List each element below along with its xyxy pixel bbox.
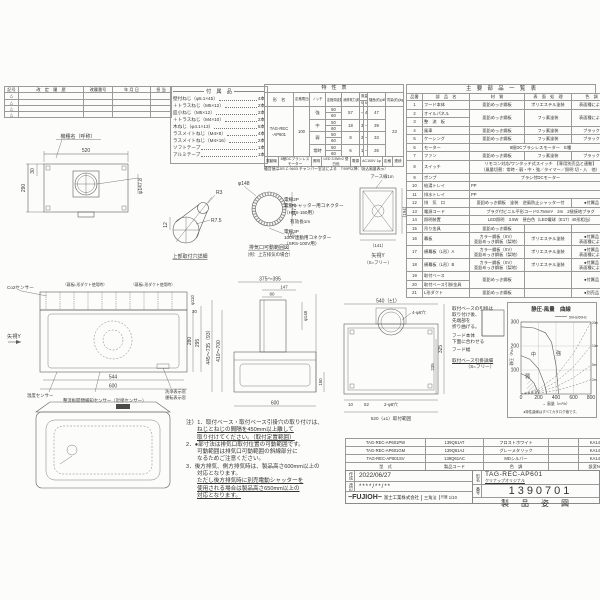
front-dim-110: φ110 bbox=[190, 295, 195, 305]
svg-text:400: 400 bbox=[552, 395, 561, 401]
accessory-item: ＋トラスねじ（M4×10）2本 bbox=[173, 116, 265, 123]
note-line: 使用される場合は製品高さ650mm以上の bbox=[186, 486, 364, 493]
view-arrow-y: 矢視Y bbox=[7, 332, 21, 344]
spec-notch: 弱 bbox=[310, 132, 326, 145]
svg-text:R7.5: R7.5 bbox=[211, 218, 222, 224]
svg-text:445～735（93）: 445～735（93） bbox=[206, 327, 212, 364]
parts-row: 5ケーシング亜鉛めっき鋼板フッ素塗装ブラック bbox=[407, 135, 600, 144]
parts-row: 8スイッチリモコン対応/ワンタッチ式スイッチ 【専用別売品と連動】（風量切替：常… bbox=[407, 160, 600, 173]
parts-row: 2オイルパネル亜鉛めっき鋼板フッ素塗装表面種による bbox=[407, 109, 600, 118]
keyhole-dim-r3: R3 bbox=[208, 190, 223, 203]
rear-bottom-dims: 10 52 2-φ8穴 bbox=[344, 400, 438, 408]
front-grille bbox=[40, 292, 187, 310]
parts-h-name: 部 品 名 bbox=[423, 94, 470, 101]
spec-h-power: 消費電力(約)(W) bbox=[342, 93, 360, 107]
graph-x-ticks: 0 200 400 600 800 bbox=[520, 395, 596, 401]
svg-text:375～395: 375～395 bbox=[259, 277, 281, 283]
svg-text:0: 0 bbox=[520, 395, 523, 401]
spec-weight: 23 bbox=[386, 107, 404, 157]
spec-h-noise: 騒音(約)(dB) bbox=[368, 93, 386, 107]
svg-text:5m: 5m bbox=[592, 363, 597, 367]
svg-text:12: 12 bbox=[163, 222, 169, 228]
bottom-panel-outline bbox=[36, 412, 170, 488]
installation-notes: 注）1．取付ベース・取付ベース引掛穴の取り付けは、 ねじとねじの間隔を450mm… bbox=[186, 420, 364, 500]
svg-text:325: 325 bbox=[438, 345, 444, 354]
spec-notch: 強 bbox=[310, 107, 326, 120]
side-dim-147: 147 bbox=[262, 285, 296, 291]
spec-model: TAG-REC-AP601 bbox=[265, 107, 294, 157]
svg-text:4-φ6穴: 4-φ6穴 bbox=[412, 309, 426, 316]
model-number: TAG-REC-AP601 bbox=[485, 471, 599, 478]
svg-text:600: 600 bbox=[569, 395, 578, 401]
spec-footer-cell: 照明 bbox=[312, 157, 322, 166]
svg-text:600: 600 bbox=[109, 384, 118, 390]
parts-table: 品番 部 品 名 材 質 表 面 処 理 色 調 1フード本体亜鉛めっき鋼板ポリ… bbox=[406, 93, 600, 298]
svg-text:φ148: φ148 bbox=[303, 310, 308, 321]
range-dim-148: φ148 bbox=[238, 181, 256, 196]
base-note-line: フード幅 bbox=[452, 347, 508, 353]
note-line: 取り付けてください。（取付定置範囲） bbox=[186, 435, 364, 442]
range-label-2: （例：上方排気の場合） bbox=[245, 251, 293, 258]
spec-footer-cell: AC100V 1φ bbox=[361, 157, 383, 166]
fujioh-logo: −FUJIOH− bbox=[346, 494, 384, 501]
accessories-title: 付 属 品 bbox=[206, 88, 232, 95]
parts-row: 1フード本体亜鉛めっき鋼板ポリエステル塗装表面種による bbox=[407, 101, 600, 110]
spec-h-air60: 60Hz bbox=[364, 101, 368, 107]
accessories-panel: 付 属 品 壁付ねじ（φ5.1×45）4本 ＋トラスねじ（M5×12）2本 皿小… bbox=[170, 86, 268, 164]
spec-power: 18 bbox=[342, 119, 360, 132]
spec-footer-cell: 8極DCブラシレスモーター bbox=[279, 157, 312, 166]
model-row: TAG-REC-AP601SV139Q61AC MDシルバー KA140 bbox=[346, 455, 600, 463]
duct-range-hatch bbox=[376, 308, 406, 324]
parts-row: 15吊り金具亜鉛めっき鋼板 bbox=[407, 224, 600, 233]
scale-label: 尺度 bbox=[439, 495, 449, 500]
rear-holes-8: 2-φ8穴 bbox=[384, 401, 398, 408]
scale-value: 1/10 bbox=[449, 495, 457, 500]
svg-text:20m: 20m bbox=[592, 321, 599, 325]
side-dim-375-395: 375～395 bbox=[238, 277, 302, 283]
svg-text:235: 235 bbox=[430, 363, 435, 371]
svg-text:540（±1）: 540（±1） bbox=[376, 299, 400, 305]
svg-text:矢視Y: 矢視Y bbox=[7, 332, 21, 340]
spec-notch: 常時 bbox=[310, 144, 326, 157]
plan-dim-30: 30 bbox=[30, 164, 37, 176]
accessory-item: ソフトテープ1本 bbox=[173, 144, 265, 151]
spec-table-block: 特 性 表 形 名 定格電圧(V) ノッチ 定格周波数(Hz) 消費電力(約)(… bbox=[264, 84, 404, 173]
spec-power: 6 bbox=[342, 144, 360, 157]
performance-graph: 静圧-風量 曲線 50Hz/60Hz 強 中 弱 2m 5m 10m 20m bbox=[507, 302, 597, 418]
svg-text:290: 290 bbox=[21, 184, 27, 193]
spec-power: 8 bbox=[342, 132, 360, 145]
mini-dim-194: （194） bbox=[402, 188, 407, 234]
spec-footer-cell: 電動機 bbox=[265, 157, 279, 166]
spec-noise: 47 bbox=[368, 107, 386, 120]
svg-text:600: 600 bbox=[271, 401, 280, 407]
spec-footer: 電動機 8極DCブラシレスモーター 照明 LED 3.5W×2 昼白色 電源 A… bbox=[264, 157, 404, 167]
spec-noise: 33 bbox=[368, 132, 386, 145]
accessory-item: アルミテープ1本 bbox=[173, 151, 265, 158]
parts-h-no: 品番 bbox=[407, 94, 423, 101]
graph-note: ●特性曲線はすべてカタログ値です。 bbox=[523, 409, 579, 414]
connector-line: （SRS-100V用） bbox=[284, 241, 354, 247]
accessory-item: ラスメイトねじ（M4×8）4本 bbox=[173, 130, 265, 137]
note-line: ただし後方排気時に別売電動シャッターを bbox=[186, 478, 364, 485]
connector-line: 電動シャッター用コネクター bbox=[284, 203, 354, 209]
mini-view-label: 矢視Y bbox=[371, 252, 385, 259]
svg-text:2m: 2m bbox=[592, 378, 597, 382]
svg-text:280: 280 bbox=[187, 337, 193, 346]
keyhole-label: 上部取付穴詳細 bbox=[172, 253, 207, 260]
side-dim-600: 600 bbox=[234, 401, 316, 407]
spec-freq: 60 bbox=[326, 150, 342, 156]
co2-sensor-label: Co2センサー bbox=[7, 285, 34, 291]
rear-dim-540: 540（±1） bbox=[344, 299, 438, 305]
spec-notch: 中 bbox=[310, 119, 326, 132]
parts-title: 主 要 部 品 一 覧 表 bbox=[406, 84, 596, 93]
spec-h-freq: 定格周波数(Hz) bbox=[326, 93, 342, 107]
parts-row: 13電源コードプラグ付ビニル平形コード0.75mm² 2m 2極接地プラグ bbox=[407, 207, 600, 216]
svg-text:150: 150 bbox=[318, 378, 323, 386]
plan-dim-duct-dia: φ147.8 bbox=[97, 174, 144, 194]
parts-table-block: 主 要 部 品 一 覧 表 品番 部 品 名 材 質 表 面 処 理 色 調 1… bbox=[406, 84, 596, 298]
spec-footer-cell: 定格 bbox=[383, 157, 393, 166]
parts-h-material: 材 質 bbox=[470, 94, 525, 101]
svg-text:（194）: （194） bbox=[402, 204, 407, 220]
title-block: 作成 2022/06/27 改訂 ****/**/** −FUJIOH− 富士工… bbox=[345, 470, 600, 504]
plan-duct-opening bbox=[73, 171, 99, 197]
revision-symbol: △ bbox=[5, 112, 19, 118]
svg-text:φ110: φ110 bbox=[190, 295, 195, 305]
accessory-item: ＋トラスねじ（M5×12）2本 bbox=[173, 102, 265, 109]
plan-dim-520: 520 bbox=[44, 148, 128, 162]
note-line: ねじとねじの間隔を450mm以上離して bbox=[186, 427, 364, 434]
side-panel-note-right: （幕板L形ダクト使用時） bbox=[131, 282, 175, 287]
rear-dim-10: 10 bbox=[348, 402, 353, 407]
graph-legend: 50Hz/60Hz bbox=[555, 316, 587, 320]
parts-row: 14照明装置LED照明 3.5W 昼白色（LED電球（E17）40形相当） bbox=[407, 216, 600, 225]
range-label-1: 排気口可動範囲図 bbox=[249, 244, 289, 251]
parts-h-surface: 表 面 処 理 bbox=[525, 94, 572, 101]
svg-text:520（±1）取付範囲: 520（±1）取付範囲 bbox=[371, 415, 412, 422]
parts-row: 17横幕板（L形）Aカラー鋼板（SV）亜鉛めっき鋼板（梨地）ポリエステル塗装●付… bbox=[407, 246, 600, 259]
parts-row: 19取付ベース亜鉛めっき鋼板●付属品 bbox=[407, 272, 600, 281]
base-detail-scale: （S=フリー） bbox=[452, 364, 508, 370]
side-dim-410-700: 410～700 bbox=[216, 310, 222, 392]
side-dim-148: φ148 bbox=[302, 302, 308, 330]
model-variants-table: TAG-REC-AP601PW139Q61AT フロストホワイト KA140 T… bbox=[345, 438, 600, 471]
side-view: 375～395 147 80 φ148 445～735（93） 410～700 bbox=[204, 274, 332, 424]
note-line: なるためご注意ください。 bbox=[186, 456, 364, 463]
accessory-item: ラスメイトねじ（M4×16）2本 bbox=[173, 137, 265, 144]
parts-row: 11排水トレイPP bbox=[407, 190, 600, 199]
mini-view-scale: （S=フリー） bbox=[364, 260, 391, 265]
spec-h-notch: ノッチ bbox=[310, 93, 326, 107]
keyhole-dim-12: 12 bbox=[163, 217, 170, 230]
drawing-no-label: 番号 bbox=[473, 485, 482, 497]
spec-voltage: 100 bbox=[294, 107, 310, 157]
model-row: TAG-REC-AP601GM139Q61AJ グレーメタリック KA140 bbox=[346, 447, 600, 455]
model-subtitle: クリナップオリジナル bbox=[485, 478, 599, 484]
connector-line: 有効長1m bbox=[284, 216, 354, 228]
plan-shutter bbox=[78, 212, 94, 217]
front-dim-280: 280 bbox=[187, 310, 193, 372]
note-line: 対応となります。 bbox=[186, 493, 364, 500]
connector-callouts: 電線2P 電動シャッター用コネクター （HDS-150用） 有効長1m 電線3P… bbox=[284, 197, 354, 248]
spec-footer-cell: 連続 bbox=[393, 157, 403, 166]
spec-h-voltage: 定格電圧(V) bbox=[294, 93, 310, 107]
revision-table: 記号 改 定 履 歴 改履番号 年 月 日 担 当 △ △ △ △ bbox=[4, 86, 172, 118]
parts-row: 10給湯トレイPP bbox=[407, 182, 600, 191]
rear-holes-6: 4-φ6穴 bbox=[402, 309, 426, 320]
accessory-item: 皿小ねじ（M5×12）2本 bbox=[173, 109, 265, 116]
spec-title: 特 性 表 bbox=[264, 84, 404, 92]
svg-text:800: 800 bbox=[587, 395, 596, 401]
nameplate-label: 機種名（呼称） bbox=[60, 133, 95, 140]
front-dim-295: 295 bbox=[195, 306, 201, 372]
product-drawing-sheet: 記号 改 定 履 歴 改履番号 年 月 日 担 当 △ △ △ △ 機種名（呼称… bbox=[0, 0, 600, 600]
front-view: Co2センサー （幕板L形ダクト使用時） （幕板L形ダクト使用時） 544 60… bbox=[5, 280, 209, 402]
spec-h-weight: 質量(約)(kg) bbox=[386, 93, 404, 107]
spec-h-airflow: 風量(m³/h) bbox=[360, 93, 368, 101]
front-body bbox=[40, 310, 187, 372]
revision-date: ****/**/** bbox=[355, 482, 472, 492]
svg-text:200: 200 bbox=[534, 395, 543, 401]
earth-wire-label: アース線1m bbox=[370, 173, 394, 180]
spec-table: 形 名 定格電圧(V) ノッチ 定格周波数(Hz) 消費電力(約)(W) 風量(… bbox=[264, 92, 404, 157]
accessory-item: 壁付ねじ（φ5.1×45）4本 bbox=[173, 95, 265, 102]
svg-text:295: 295 bbox=[195, 339, 201, 348]
parts-h-color: 色 調 bbox=[572, 94, 600, 101]
side-dim-80: 80 bbox=[262, 292, 282, 298]
bottom-display-window bbox=[116, 404, 130, 409]
graph-y-label: → 静圧（Pa） bbox=[509, 346, 514, 371]
svg-text:544: 544 bbox=[109, 375, 118, 381]
projection-method: 三角法 bbox=[421, 495, 439, 501]
bottom-view bbox=[20, 398, 188, 498]
rear-dim-52: 52 bbox=[364, 402, 369, 407]
base-hook-detail bbox=[480, 308, 506, 338]
creation-date: 2022/06/27 bbox=[355, 471, 472, 481]
drawing-number: 1390701 bbox=[482, 485, 599, 497]
side-dim-445-735: 445～735（93） bbox=[206, 300, 212, 392]
side-panel-note-left: （幕板L形ダクト使用時） bbox=[63, 282, 107, 287]
spec-h-air50: 50Hz bbox=[360, 101, 364, 107]
svg-text:強: 強 bbox=[556, 350, 561, 357]
svg-text:520: 520 bbox=[82, 148, 91, 154]
rear-duct-circle bbox=[378, 309, 404, 335]
parts-row: 18横幕板（L形）Bカラー鋼板（SV）亜鉛めっき鋼板（梨地）ポリエステル塗装●付… bbox=[407, 259, 600, 272]
note-line: 3．後方排気、側方排気時は、製品高さ600mm以上の bbox=[186, 464, 364, 471]
spec-h-model: 形 名 bbox=[265, 93, 294, 107]
model-row: TAG-REC-AP601PW139Q61AT フロストホワイト KA140 bbox=[346, 439, 600, 447]
svg-text:300: 300 bbox=[511, 320, 520, 326]
revision-label: 改訂 bbox=[346, 482, 355, 492]
svg-text:147: 147 bbox=[280, 285, 288, 290]
company-name: 富士工業株式会社 bbox=[384, 495, 419, 501]
svg-text:10m: 10m bbox=[592, 344, 599, 348]
svg-text:中: 中 bbox=[531, 351, 536, 358]
parts-row: 4風車亜鉛めっき鋼板フッ素塗装ブラック bbox=[407, 126, 600, 135]
side-dim-150: 150 bbox=[318, 372, 324, 392]
keyhole-detail: 12 R3 R7.5 上部取付穴詳細 bbox=[152, 180, 232, 264]
svg-text:R3: R3 bbox=[216, 190, 223, 196]
graph-title: 静圧-風量 曲線 bbox=[531, 305, 571, 313]
parts-row: 12排 気 口亜鉛めっき鋼板 塗装 逆風防止シャッター付●付属品 bbox=[407, 199, 600, 208]
parts-row: 9ポンプブラシ付DCモーター bbox=[407, 173, 600, 182]
wash-indicator-label: 洗浄表示窓 bbox=[165, 388, 186, 395]
rear-mini-view: アース線1m （194） （141） 矢視Y （S=フリー） bbox=[352, 172, 412, 268]
keyhole-dim-r75: R7.5 bbox=[196, 218, 222, 224]
graph-series-labels: 強 中 弱 2m 5m 10m 20m bbox=[525, 321, 599, 382]
svg-text:410～700: 410～700 bbox=[216, 340, 222, 362]
base-note-line: 下面に合わせる bbox=[452, 339, 508, 345]
rear-view: 540（±1） 4-φ6穴 325 235 10 52 2-φ8穴 520（ bbox=[336, 294, 454, 436]
mini-dim-141: （141） bbox=[360, 240, 396, 248]
spec-noise: 26 bbox=[368, 144, 386, 157]
spec-footer-cell: 電源 bbox=[351, 157, 361, 166]
spec-noise: 39 bbox=[368, 119, 386, 132]
rear-dim-325: 325 bbox=[438, 304, 444, 394]
parts-row: 6モーター8極DCブラシレスモーター E種 bbox=[407, 143, 600, 152]
spec-power: 57 bbox=[342, 107, 360, 120]
accessory-item: 木ねじ（φ4.1×13）6本 bbox=[173, 123, 265, 130]
front-dim-544: 544 bbox=[43, 375, 184, 381]
date-label: 作成 bbox=[346, 471, 355, 481]
svg-text:弱: 弱 bbox=[525, 374, 530, 380]
plan-view: 機種名（呼称） 520 30 290 φ147.8 bbox=[6, 128, 174, 286]
parts-row: 16幕板カラー鋼板（SV）亜鉛めっき鋼板（梨地）ポリエステル塗装●付属品表面種に… bbox=[407, 233, 600, 246]
spec-footer-cell: LED 3.5W×2 昼白色 bbox=[322, 157, 351, 166]
document-title: 製 品 姿 図 bbox=[473, 498, 599, 509]
svg-text:（141）: （141） bbox=[370, 243, 386, 248]
rear-dim-235: 235 bbox=[430, 339, 436, 394]
graph-x-label: → 風量（m³/h） bbox=[542, 401, 570, 406]
svg-text:80: 80 bbox=[270, 292, 275, 297]
svg-text:φ148: φ148 bbox=[238, 181, 250, 187]
svg-text:φ147.8: φ147.8 bbox=[138, 178, 144, 194]
model-label: 形名 bbox=[473, 471, 482, 484]
svg-text:30: 30 bbox=[30, 168, 36, 174]
rear-body bbox=[344, 324, 438, 394]
parts-row: 7ファン亜鉛めっき鋼板フッ素塗装ブラック bbox=[407, 152, 600, 161]
svg-text:50Hz/60Hz: 50Hz/60Hz bbox=[569, 316, 587, 320]
